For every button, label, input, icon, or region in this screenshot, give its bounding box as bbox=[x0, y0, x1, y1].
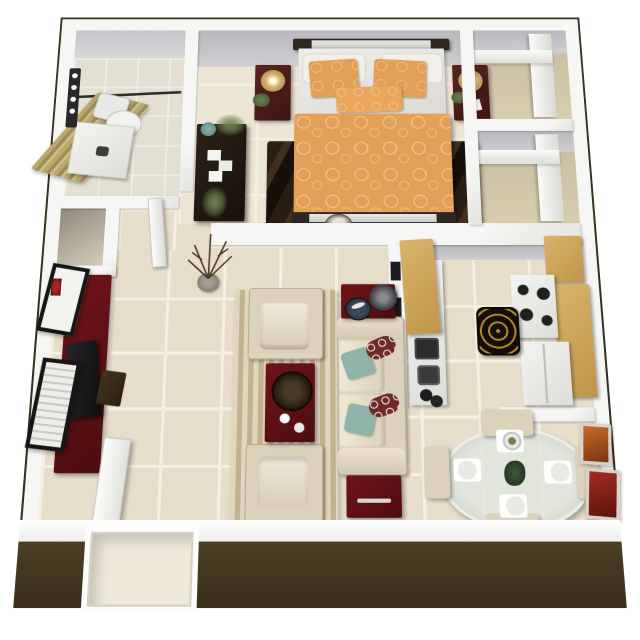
closet-1-shelf-horizontal bbox=[474, 50, 553, 63]
sofa-armrest-bottom bbox=[338, 448, 406, 473]
apartment-unit bbox=[13, 18, 627, 608]
table-lamp-left bbox=[261, 70, 286, 92]
dining-wall-art-1 bbox=[580, 423, 612, 466]
kitchen-cabinet-side-panels bbox=[390, 262, 400, 281]
armchair-bottom-cushion bbox=[257, 457, 308, 508]
entry-door-opening bbox=[81, 526, 200, 612]
kitchen-spiral-rug bbox=[476, 307, 521, 355]
bed-headboard-panel bbox=[312, 40, 431, 48]
dining-chair-west bbox=[423, 446, 450, 498]
coffee-table-tray bbox=[271, 371, 312, 411]
bed-comforter bbox=[294, 114, 455, 214]
dresser-decor-boxes bbox=[207, 150, 221, 160]
linen-closet-floor bbox=[57, 209, 106, 268]
kitchen-sink bbox=[417, 365, 440, 385]
place-settings-ew bbox=[453, 459, 481, 482]
dining-centerpiece bbox=[504, 461, 526, 486]
counter-small-appliances bbox=[420, 389, 433, 401]
twig-branches bbox=[179, 229, 240, 281]
coffee-table-cups bbox=[279, 413, 289, 423]
end-table-plate bbox=[345, 297, 371, 320]
end-table-bottom bbox=[346, 475, 402, 517]
microwave bbox=[414, 338, 439, 360]
armchair-top-cushion bbox=[260, 303, 309, 349]
bed-pillow-lumbar bbox=[336, 86, 404, 113]
closet-2-shelf-horizontal bbox=[478, 150, 560, 164]
wall-bedroom-south bbox=[210, 223, 581, 245]
end-table-lamp bbox=[369, 284, 398, 311]
closet-2-back-wall-face bbox=[478, 131, 575, 152]
wall-closet-divider bbox=[477, 119, 573, 131]
end-table-bottom-handle bbox=[357, 499, 391, 503]
vanity-sink-faucet bbox=[95, 146, 109, 157]
wall-art-frame-top-content bbox=[50, 279, 61, 296]
sofa-armrest-top bbox=[337, 317, 402, 340]
place-setting-plates bbox=[502, 432, 522, 451]
floorplan-render bbox=[0, 0, 640, 640]
dining-wall-art-2 bbox=[585, 468, 620, 522]
shower-back-wall-face bbox=[74, 31, 185, 59]
